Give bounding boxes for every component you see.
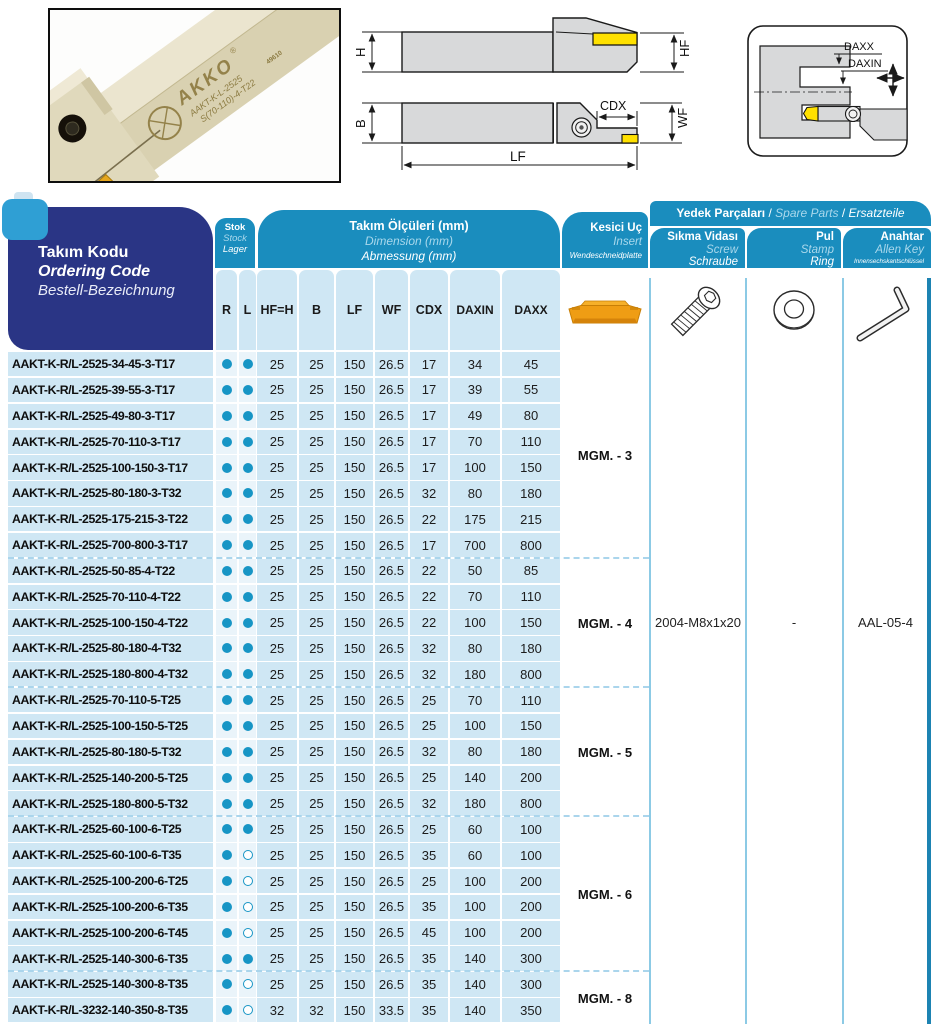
table-row: AAKT-K-R/L-2525-60-100-6-T35252515026.53… [0, 843, 931, 867]
dim-cell: 700 [450, 533, 500, 557]
ordering-code-cell: AAKT-K-R/L-3232-140-350-8-T35 [8, 998, 213, 1022]
allen-key-de: Innensechskantschlüssel [843, 256, 924, 269]
dim-cell: 25 [299, 714, 334, 738]
stock-dot-r [216, 817, 237, 841]
stamp-tr: Pul [747, 231, 834, 244]
stock-r-filled-dot [222, 566, 232, 576]
ordering-code-cell: AAKT-K-R/L-2525-100-150-5-T25 [8, 714, 213, 738]
dim-cell: 150 [336, 972, 373, 996]
column-header-hf=h: HF=H [257, 270, 297, 350]
dim-cell: 26.5 [375, 455, 408, 479]
dim-cell: 150 [336, 791, 373, 815]
dim-cell: 150 [336, 688, 373, 712]
dim-cell: 26.5 [375, 636, 408, 660]
stock-l-filled-dot [243, 773, 253, 783]
table-row: AAKT-K-R/L-2525-60-100-6-T25252515026.52… [0, 817, 931, 841]
stock-dot-l [239, 869, 256, 893]
dim-cell: 140 [450, 946, 500, 970]
stock-l-filled-dot [243, 669, 253, 679]
dim-cell: 150 [336, 921, 373, 945]
stock-dot-l [239, 455, 256, 479]
dim-cell: 25 [257, 688, 297, 712]
stock-r-filled-dot [222, 618, 232, 628]
dim-cell: 140 [450, 972, 500, 996]
screw-de: Schraube [650, 256, 738, 269]
dim-cell: 25 [257, 481, 297, 505]
dim-cell: 150 [336, 455, 373, 479]
insert-code-cell: MGM. - 5 [561, 688, 649, 817]
stamp-de: Ring [747, 256, 834, 269]
stock-r-filled-dot [222, 850, 232, 860]
dim-cell: 300 [502, 972, 560, 996]
stock-dot-r [216, 766, 237, 790]
washer-icon [762, 286, 826, 339]
stock-dot-l [239, 895, 256, 919]
dim-cell: 150 [336, 662, 373, 686]
dim-cell: 26.5 [375, 895, 408, 919]
dim-cell: 35 [410, 946, 448, 970]
dim-cell: 25 [410, 766, 448, 790]
dim-cell: 150 [336, 430, 373, 454]
dim-cell: 25 [257, 766, 297, 790]
table-row: AAKT-K-R/L-2525-100-200-6-T25252515026.5… [0, 869, 931, 893]
dim-cell: 25 [299, 869, 334, 893]
dim-cell: 26.5 [375, 921, 408, 945]
dim-cell: 25 [257, 714, 297, 738]
stock-l-filled-dot [243, 566, 253, 576]
stock-dot-r [216, 404, 237, 428]
insert-code-cell: MGM. - 6 [561, 817, 649, 972]
insert-header: Kesici Uç Insert Wendeschneidplatte [562, 212, 648, 268]
table-row: AAKT-K-R/L-2525-34-45-3-T17252515026.517… [0, 352, 931, 376]
dim-label-daxx: DAXX [844, 41, 875, 53]
dim-cell: 35 [410, 843, 448, 867]
stock-dot-r [216, 869, 237, 893]
dim-cell: 39 [450, 378, 500, 402]
dim-cell: 25 [257, 585, 297, 609]
dim-cell: 25 [410, 869, 448, 893]
dim-cell: 25 [257, 817, 297, 841]
stock-dot-l [239, 610, 256, 634]
table-row: AAKT-K-R/L-2525-100-200-6-T35252515026.5… [0, 895, 931, 919]
dim-cell: 110 [502, 585, 560, 609]
dim-cell: 200 [502, 895, 560, 919]
dim-cell: 25 [299, 481, 334, 505]
dim-cell: 25 [299, 843, 334, 867]
stock-dot-r [216, 946, 237, 970]
dim-cell: 32 [410, 662, 448, 686]
stock-dot-l [239, 998, 256, 1022]
dim-cell: 150 [336, 585, 373, 609]
dim-cell: 26.5 [375, 559, 408, 583]
stock-r-filled-dot [222, 695, 232, 705]
front-view-drawing: DAXX DAXIN [728, 10, 931, 160]
dim-cell: 25 [299, 378, 334, 402]
dim-cell: 26.5 [375, 430, 408, 454]
dim-cell: 25 [299, 585, 334, 609]
dim-cell: 26.5 [375, 481, 408, 505]
dim-cell: 25 [257, 352, 297, 376]
screw-header: Sıkma Vidası Screw Schraube [650, 228, 745, 268]
dim-cell: 100 [450, 869, 500, 893]
stock-dot-l [239, 817, 256, 841]
dim-cell: 150 [336, 559, 373, 583]
stock-l-open-dot [243, 928, 253, 938]
insert-image [567, 298, 643, 331]
dim-label-wf: WF [675, 108, 690, 128]
stock-dot-l [239, 481, 256, 505]
ordering-code-cell: AAKT-K-R/L-2525-49-80-3-T17 [8, 404, 213, 428]
stamp-en: Stamp [747, 244, 834, 257]
stock-dot-r [216, 895, 237, 919]
stock-l-open-dot [243, 902, 253, 912]
stock-dot-r [216, 378, 237, 402]
table-row: AAKT-K-R/L-2525-70-110-4-T22252515026.52… [0, 585, 931, 609]
dim-cell: 150 [502, 714, 560, 738]
table-row: AAKT-K-R/L-2525-49-80-3-T17252515026.517… [0, 404, 931, 428]
dim-label-hf: HF [677, 40, 692, 57]
stock-dot-l [239, 404, 256, 428]
stamp-header: Pul Stamp Ring [747, 228, 841, 268]
stock-dot-r [216, 843, 237, 867]
spare-parts-sep1: / [765, 206, 775, 220]
dim-label-h: H [353, 48, 368, 57]
dim-cell: 25 [299, 921, 334, 945]
stock-l-filled-dot [243, 463, 253, 473]
stock-r-filled-dot [222, 540, 232, 550]
stock-l-filled-dot [243, 747, 253, 757]
dim-cell: 26.5 [375, 791, 408, 815]
stock-l-filled-dot [243, 721, 253, 731]
dim-cell: 17 [410, 404, 448, 428]
dim-cell: 17 [410, 352, 448, 376]
dim-cell: 25 [299, 636, 334, 660]
dim-cell: 26.5 [375, 352, 408, 376]
stock-dot-l [239, 921, 256, 945]
dim-cell: 70 [450, 585, 500, 609]
stock-r-filled-dot [222, 643, 232, 653]
dim-cell: 200 [502, 869, 560, 893]
dim-cell: 180 [502, 481, 560, 505]
ordering-code-cell: AAKT-K-R/L-2525-100-150-3-T17 [8, 455, 213, 479]
stock-r-filled-dot [222, 669, 232, 679]
stock-dot-l [239, 507, 256, 531]
dim-cell: 25 [257, 843, 297, 867]
screw-icon [658, 281, 738, 356]
dim-cell: 45 [502, 352, 560, 376]
dim-cell: 60 [450, 817, 500, 841]
dim-cell: 22 [410, 559, 448, 583]
screw-value: 2004-M8x1x20 [650, 609, 746, 635]
table-row: AAKT-K-R/L-2525-140-300-8-T35252515026.5… [0, 972, 931, 996]
dim-cell: 25 [299, 817, 334, 841]
stock-l-filled-dot [243, 695, 253, 705]
ordering-code-cell: AAKT-K-R/L-2525-180-800-4-T32 [8, 662, 213, 686]
dim-cell: 150 [336, 507, 373, 531]
dim-cell: 140 [450, 766, 500, 790]
dim-cell: 100 [450, 921, 500, 945]
dim-cell: 150 [336, 817, 373, 841]
stock-l-filled-dot [243, 799, 253, 809]
ordering-code-cell: AAKT-K-R/L-2525-50-85-4-T22 [8, 559, 213, 583]
stock-r-filled-dot [222, 747, 232, 757]
stock-r-filled-dot [222, 773, 232, 783]
dim-cell: 110 [502, 688, 560, 712]
dimensions-header: Takım Ölçüleri (mm) Dimension (mm) Abmes… [258, 210, 560, 268]
dim-cell: 32 [410, 740, 448, 764]
ordering-code-cell: AAKT-K-R/L-2525-80-180-4-T32 [8, 636, 213, 660]
ordering-code-cell: AAKT-K-R/L-2525-70-110-3-T17 [8, 430, 213, 454]
stock-dot-r [216, 610, 237, 634]
ordering-code-cell: AAKT-K-R/L-2525-140-300-6-T35 [8, 946, 213, 970]
dim-cell: 25 [299, 533, 334, 557]
stock-l-filled-dot [243, 437, 253, 447]
dim-cell: 150 [336, 481, 373, 505]
column-header-l: L [239, 270, 256, 350]
stock-r-filled-dot [222, 592, 232, 602]
column-header-b: B [299, 270, 334, 350]
stock-l-filled-dot [243, 592, 253, 602]
table-row: AAKT-K-R/L-2525-140-200-5-T25252515026.5… [0, 766, 931, 790]
dim-cell: 300 [502, 946, 560, 970]
dim-cell: 800 [502, 791, 560, 815]
stock-r-filled-dot [222, 928, 232, 938]
ordering-code-cell: AAKT-K-R/L-2525-39-55-3-T17 [8, 378, 213, 402]
stock-r-filled-dot [222, 902, 232, 912]
dim-cell: 25 [299, 946, 334, 970]
dim-cell: 25 [257, 662, 297, 686]
dim-cell: 26.5 [375, 610, 408, 634]
dim-cell: 26.5 [375, 378, 408, 402]
stock-dot-l [239, 430, 256, 454]
dim-cell: 150 [502, 610, 560, 634]
insert-code-cell: MGM. - 8 [561, 972, 649, 1024]
dim-cell: 22 [410, 507, 448, 531]
spare-parts-tr: Yedek Parçaları [676, 206, 765, 220]
ordering-code-cell: AAKT-K-R/L-2525-180-800-5-T32 [8, 791, 213, 815]
allen-key-value: AAL-05-4 [843, 609, 928, 635]
ordering-code-cell: AAKT-K-R/L-2525-175-215-3-T22 [8, 507, 213, 531]
stock-dot-l [239, 791, 256, 815]
allen-key-tr: Anahtar [843, 231, 924, 244]
insert-tr: Kesici Uç [562, 221, 642, 235]
stock-dot-l [239, 766, 256, 790]
column-header-lf: LF [336, 270, 373, 350]
stock-dot-r [216, 921, 237, 945]
dim-cell: 25 [299, 455, 334, 479]
stock-dot-l [239, 946, 256, 970]
stock-l-open-dot [243, 1005, 253, 1015]
dim-cell: 32 [410, 636, 448, 660]
table-row: AAKT-K-R/L-2525-700-800-3-T17252515026.5… [0, 533, 931, 557]
stock-dot-r [216, 791, 237, 815]
dim-cell: 25 [257, 559, 297, 583]
dim-cell: 150 [336, 533, 373, 557]
stock-dot-l [239, 378, 256, 402]
stock-dot-r [216, 636, 237, 660]
spare-parts-header: Yedek Parçaları / Spare Parts / Ersatzte… [650, 201, 931, 226]
dim-cell: 34 [450, 352, 500, 376]
dim-cell: 32 [257, 998, 297, 1022]
stock-l-filled-dot [243, 824, 253, 834]
dim-cell: 25 [299, 559, 334, 583]
dim-cell: 26.5 [375, 740, 408, 764]
stock-dot-l [239, 740, 256, 764]
allen-key-icon [848, 282, 926, 351]
stock-r-filled-dot [222, 463, 232, 473]
tool-photo-image: AKKO ® AAKT-K-L-2525 S(70-110)-4-T22 496… [50, 10, 339, 181]
dimensions-en: Dimension (mm) [258, 234, 560, 249]
dim-cell: 17 [410, 378, 448, 402]
dim-cell: 215 [502, 507, 560, 531]
stock-l-filled-dot [243, 618, 253, 628]
table-row: AAKT-K-R/L-3232-140-350-8-T35323215033.5… [0, 998, 931, 1022]
stock-r-filled-dot [222, 876, 232, 886]
ordering-code-cell: AAKT-K-R/L-2525-140-200-5-T25 [8, 766, 213, 790]
allen-key-header: Anahtar Allen Key Innensechskantschlüsse… [843, 228, 931, 268]
dim-cell: 35 [410, 895, 448, 919]
dim-cell: 100 [450, 895, 500, 919]
dim-cell: 200 [502, 921, 560, 945]
dim-cell: 140 [450, 998, 500, 1022]
side-view-insert [593, 33, 637, 45]
dim-cell: 150 [336, 946, 373, 970]
stock-r-filled-dot [222, 1005, 232, 1015]
stock-dot-r [216, 662, 237, 686]
stock-dot-r [216, 740, 237, 764]
corner-icon-body [2, 199, 48, 240]
ordering-code-cell: AAKT-K-R/L-2525-34-45-3-T17 [8, 352, 213, 376]
insert-code-cell: MGM. - 3 [561, 352, 649, 559]
dim-cell: 25 [257, 972, 297, 996]
stock-l-filled-dot [243, 514, 253, 524]
dim-cell: 26.5 [375, 714, 408, 738]
dim-cell: 150 [336, 378, 373, 402]
spare-parts-de: Ersatzteile [849, 206, 905, 220]
insert-en: Insert [562, 235, 642, 249]
dim-cell: 100 [450, 610, 500, 634]
dim-cell: 49 [450, 404, 500, 428]
dim-cell: 25 [257, 455, 297, 479]
dimensions-de: Abmessung (mm) [258, 249, 560, 264]
dim-cell: 150 [336, 843, 373, 867]
table-row: AAKT-K-R/L-2525-100-150-3-T17252515026.5… [0, 455, 931, 479]
ordering-code-cell: AAKT-K-R/L-2525-100-200-6-T45 [8, 921, 213, 945]
stock-r-filled-dot [222, 824, 232, 834]
side-and-top-view-drawing: H HF B CDX [348, 0, 730, 196]
stock-dot-r [216, 507, 237, 531]
dim-cell: 25 [257, 740, 297, 764]
dim-cell: 175 [450, 507, 500, 531]
dim-cell: 25 [299, 791, 334, 815]
dim-cell: 26.5 [375, 404, 408, 428]
dim-cell: 50 [450, 559, 500, 583]
stock-dot-l [239, 559, 256, 583]
stock-dot-r [216, 559, 237, 583]
dim-cell: 80 [502, 404, 560, 428]
dim-cell: 80 [450, 481, 500, 505]
table-row: AAKT-K-R/L-2525-175-215-3-T22252515026.5… [0, 507, 931, 531]
dim-cell: 26.5 [375, 972, 408, 996]
table-row: AAKT-K-R/L-2525-70-110-3-T17252515026.51… [0, 430, 931, 454]
dim-cell: 150 [502, 455, 560, 479]
dim-cell: 180 [450, 791, 500, 815]
stock-r-filled-dot [222, 411, 232, 421]
dim-cell: 22 [410, 610, 448, 634]
table-row: AAKT-K-R/L-2525-80-180-5-T32252515026.53… [0, 740, 931, 764]
stock-l-filled-dot [243, 488, 253, 498]
dim-cell: 25 [299, 507, 334, 531]
stock-l-filled-dot [243, 411, 253, 421]
dim-cell: 25 [299, 895, 334, 919]
stock-dot-l [239, 662, 256, 686]
stock-r-filled-dot [222, 721, 232, 731]
ordering-code-cell: AAKT-K-R/L-2525-80-180-3-T32 [8, 481, 213, 505]
column-header-daxx: DAXX [502, 270, 560, 350]
stock-de: Lager [215, 244, 255, 255]
dim-cell: 26.5 [375, 507, 408, 531]
stock-en: Stock [215, 233, 255, 244]
ordering-code-cell: AAKT-K-R/L-2525-700-800-3-T17 [8, 533, 213, 557]
dim-cell: 25 [257, 610, 297, 634]
insert-code-cell: MGM. - 4 [561, 559, 649, 688]
dim-cell: 180 [502, 636, 560, 660]
dim-cell: 26.5 [375, 817, 408, 841]
stock-dot-r [216, 585, 237, 609]
stock-dot-r [216, 481, 237, 505]
stock-l-open-dot [243, 850, 253, 860]
stock-l-filled-dot [243, 954, 253, 964]
dim-cell: 800 [502, 662, 560, 686]
stock-l-filled-dot [243, 359, 253, 369]
table-row: AAKT-K-R/L-2525-180-800-4-T32252515026.5… [0, 662, 931, 686]
dim-cell: 180 [502, 740, 560, 764]
dim-cell: 110 [502, 430, 560, 454]
dim-cell: 25 [299, 610, 334, 634]
dim-cell: 25 [410, 817, 448, 841]
column-header-wf: WF [375, 270, 408, 350]
dim-cell: 100 [502, 843, 560, 867]
dim-cell: 25 [257, 378, 297, 402]
stock-dot-l [239, 688, 256, 712]
dim-cell: 150 [336, 740, 373, 764]
dim-label-daxin: DAXIN [848, 58, 882, 70]
stock-dot-r [216, 430, 237, 454]
stock-dot-l [239, 636, 256, 660]
dim-cell: 60 [450, 843, 500, 867]
stamp-value: - [746, 609, 842, 635]
stock-dot-r [216, 688, 237, 712]
stock-l-filled-dot [243, 540, 253, 550]
screw-tr: Sıkma Vidası [650, 231, 738, 244]
stock-header: Stok Stock Lager [215, 218, 255, 268]
ordering-code-cell: AAKT-K-R/L-2525-70-110-4-T22 [8, 585, 213, 609]
stock-dot-r [216, 972, 237, 996]
dim-cell: 17 [410, 533, 448, 557]
dim-cell: 70 [450, 430, 500, 454]
dim-cell: 25 [257, 507, 297, 531]
stock-dot-l [239, 843, 256, 867]
dim-cell: 25 [299, 740, 334, 764]
dim-cell: 150 [336, 404, 373, 428]
dim-cell: 33.5 [375, 998, 408, 1022]
stock-dot-r [216, 352, 237, 376]
table-row: AAKT-K-R/L-2525-100-150-5-T25252515026.5… [0, 714, 931, 738]
spare-parts-sep2: / [839, 206, 849, 220]
dim-cell: 25 [299, 662, 334, 686]
table-row: AAKT-K-R/L-2525-140-300-6-T35252515026.5… [0, 946, 931, 970]
stock-r-filled-dot [222, 359, 232, 369]
